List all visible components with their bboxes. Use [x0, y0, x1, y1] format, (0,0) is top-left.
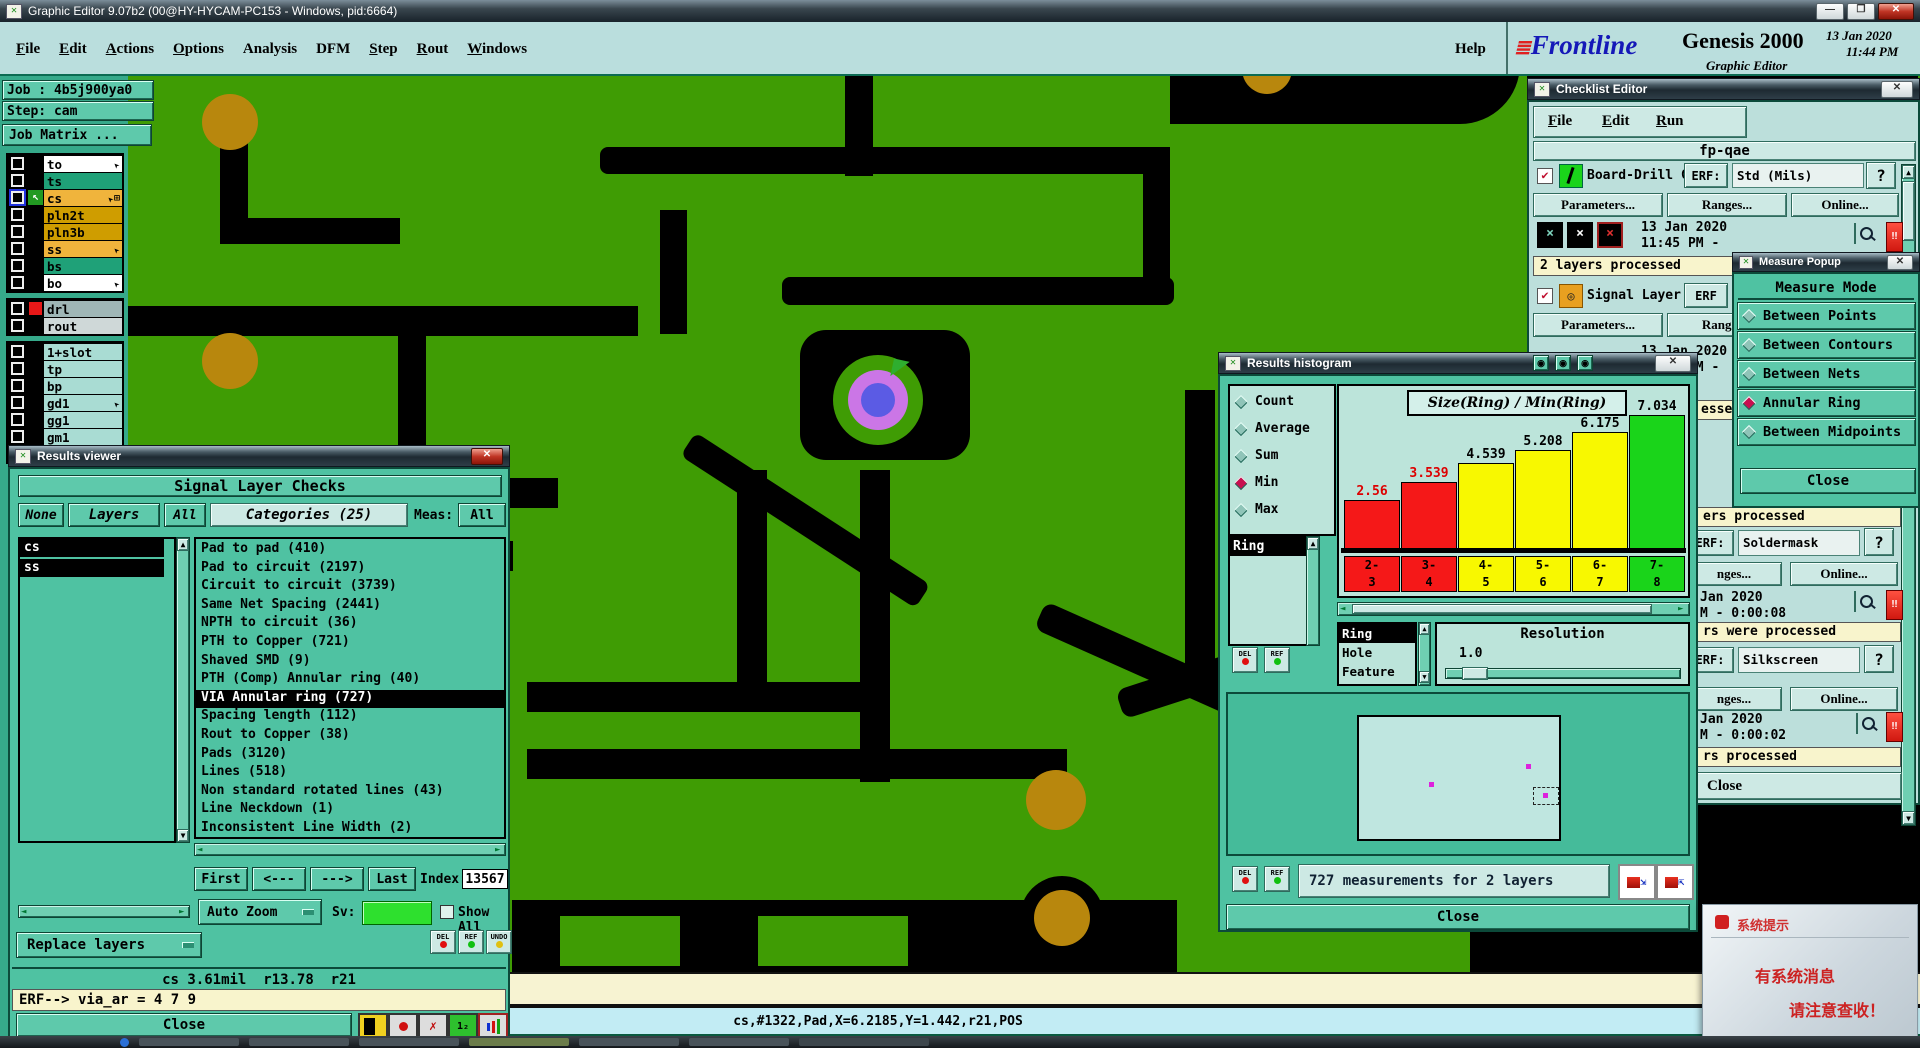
run-check-alt-icon[interactable]: ⨯: [1567, 222, 1593, 248]
prev-button[interactable]: <---: [252, 867, 306, 891]
taskbar-button[interactable]: [139, 1038, 239, 1046]
layer-visibility-checkbox[interactable]: [8, 394, 27, 411]
scroll-right-icon: ►: [1678, 604, 1683, 614]
layer-status-icon[interactable]: [27, 394, 44, 411]
pcb-trace: [1185, 390, 1215, 690]
system-message-popup[interactable]: 系统提示 有系统消息 请注意查收！: [1702, 904, 1918, 1040]
undo-result-button[interactable]: UNDO: [486, 930, 512, 954]
radio-diamond-icon: [1234, 421, 1248, 435]
run-check-stop-icon[interactable]: ⨯: [1597, 222, 1623, 248]
check-enabled-checkbox[interactable]: ✔: [1537, 168, 1553, 184]
maximize-button[interactable]: ❐: [1847, 3, 1875, 20]
dropdown-dash-icon: [302, 909, 314, 915]
alert-icon[interactable]: ‼: [1886, 222, 1903, 252]
menu-analysis[interactable]: Analysis: [243, 41, 297, 58]
board-outline: [1357, 715, 1561, 841]
erf-button[interactable]: ERF:: [1684, 163, 1728, 188]
layer-visibility-checkbox[interactable]: [8, 274, 27, 291]
undo-label: UNDO: [491, 933, 508, 941]
layer-row-to[interactable]: to➤: [8, 155, 122, 172]
layer-flag-icon: ➤: [109, 156, 125, 172]
ranges-button[interactable]: nges...: [1686, 687, 1782, 711]
category-item[interactable]: VIA Annular ring (727): [196, 690, 504, 709]
checklist-menu-edit[interactable]: Edit: [1602, 113, 1630, 130]
radio-diamond-icon: [1742, 425, 1756, 439]
window-title: Measure Popup: [1759, 256, 1841, 268]
parameters-button[interactable]: Parameters...: [1533, 313, 1663, 337]
results-close-button[interactable]: Close: [16, 1013, 352, 1037]
glass-artifact-icon: ◉: [1555, 355, 1571, 371]
category-item[interactable]: Lines (518): [196, 764, 504, 783]
pcb-trace: [527, 749, 1067, 779]
category-item[interactable]: Pad to pad (410): [196, 541, 504, 560]
glass-artifact-icon: ◉: [1533, 355, 1549, 371]
drill-glyph: [1566, 167, 1574, 184]
stat-option-max[interactable]: Max: [1236, 502, 1278, 517]
scroll-up-icon[interactable]: ▲: [1307, 537, 1319, 550]
layer-visibility-checkbox[interactable]: [8, 257, 27, 274]
layer-visibility-checkbox[interactable]: [8, 428, 27, 445]
layer-row-ss[interactable]: ss➤: [8, 240, 122, 257]
layer-status-icon[interactable]: [27, 411, 44, 428]
feature-item[interactable]: Hole: [1339, 643, 1415, 662]
axis-range-cell: 5-6: [1515, 556, 1571, 592]
erf-value-field[interactable]: Std (Mils): [1732, 163, 1864, 188]
replace-layers-dropdown[interactable]: Replace layers: [16, 932, 202, 958]
layer-list-scrollbar[interactable]: ▲ ▼: [176, 537, 190, 843]
axis-range-cell: 3-4: [1401, 556, 1457, 592]
zoom-result-icon[interactable]: [1854, 591, 1856, 612]
series-listbox: Ring: [1228, 536, 1308, 646]
menu-actions[interactable]: Actions: [106, 41, 154, 58]
category-item[interactable]: Pad to circuit (2197): [196, 560, 504, 579]
layer-row-bs[interactable]: bs: [8, 257, 122, 274]
layer-row-bo[interactable]: bo➤: [8, 274, 122, 291]
layer-name[interactable]: pln3b: [44, 223, 122, 240]
scroll-thumb[interactable]: [1902, 181, 1915, 241]
layer-row-cs[interactable]: ↖cs➤⊞: [8, 189, 122, 206]
layer-status-icon[interactable]: [27, 343, 44, 360]
zoom-result-icon[interactable]: [1854, 223, 1856, 244]
red-dot-icon: [440, 941, 447, 948]
measurement-dot[interactable]: [1429, 782, 1434, 787]
layer-status-icon[interactable]: [27, 155, 44, 172]
taskbar-button[interactable]: [359, 1038, 459, 1046]
stat-option-average[interactable]: Average: [1236, 421, 1310, 436]
filter-all-button[interactable]: All: [164, 503, 206, 527]
measure-mode-between-points[interactable]: Between Points: [1737, 302, 1916, 330]
parameters-button[interactable]: Parameters...: [1533, 193, 1663, 217]
layer-visibility-checkbox[interactable]: [8, 155, 27, 172]
axis-cells: 2-33-44-55-66-77-8: [1344, 556, 1686, 592]
run-time: M - 0:00:08: [1700, 606, 1786, 621]
ref-label: REF: [1271, 869, 1284, 877]
close-button[interactable]: ✕: [1878, 3, 1914, 20]
layer-color-chip: [29, 302, 42, 315]
option-label: Between Contours: [1763, 337, 1893, 353]
feature-item[interactable]: Ring: [1339, 624, 1415, 643]
taskbar-button[interactable]: [469, 1038, 569, 1046]
resolution-slider[interactable]: [1445, 668, 1681, 679]
next-button[interactable]: --->: [310, 867, 364, 891]
layer-name[interactable]: tp: [44, 360, 122, 377]
filter-layers-button[interactable]: Layers: [68, 503, 160, 527]
layer-row-gm1[interactable]: gm1: [8, 428, 122, 445]
meas-dropdown[interactable]: All: [458, 503, 506, 527]
layer-visibility-checkbox[interactable]: [8, 317, 27, 334]
job-matrix-button[interactable]: Job Matrix ...: [2, 124, 152, 146]
layer-status-icon[interactable]: [27, 257, 44, 274]
layer-status-icon[interactable]: [27, 377, 44, 394]
bar-value-label: 6.175: [1573, 416, 1627, 431]
erf-value-field[interactable]: Silkscreen: [1738, 647, 1860, 673]
clock-date: 13 Jan 2020: [1826, 28, 1892, 44]
red-dot-icon: [1242, 658, 1249, 665]
menu-rout[interactable]: Rout: [417, 41, 449, 58]
result-layer-listbox: cs ss: [18, 537, 176, 843]
scroll-down-icon[interactable]: ▼: [177, 829, 189, 842]
axis-baseline: [1341, 548, 1686, 553]
series-scrollbar[interactable]: ▲: [1306, 536, 1320, 646]
layer-status-icon[interactable]: [27, 240, 44, 257]
clock-time: 11:44 PM: [1846, 44, 1898, 60]
measurement-map-panel: [1226, 692, 1690, 856]
layer-name[interactable]: gg1: [44, 411, 122, 428]
taskbar-button[interactable]: [579, 1038, 679, 1046]
menu-file[interactable]: File: [16, 41, 40, 58]
slider-thumb[interactable]: [1462, 667, 1488, 680]
stat-option-count[interactable]: Count: [1236, 394, 1294, 409]
histogram-close-button[interactable]: Close: [1226, 904, 1690, 930]
import-histogram-icon[interactable]: ⇱: [1656, 864, 1694, 900]
bars-area: 2.563.5394.5395.2086.1757.034: [1344, 386, 1686, 549]
radio-diamond-icon: [1234, 448, 1248, 462]
feature-scrollbar[interactable]: ▲ ▼: [1418, 622, 1431, 686]
green-dot-icon: [1274, 658, 1281, 665]
layer-name[interactable]: ts: [44, 172, 122, 189]
checklist-menubar: File Edit Run: [1533, 106, 1747, 138]
app-icon: ✕: [6, 4, 22, 19]
last-button[interactable]: Last: [368, 867, 416, 891]
pcb-trace: [845, 64, 873, 176]
alert-icon[interactable]: ‼: [1886, 590, 1903, 620]
window-title: Results viewer: [37, 449, 121, 463]
layer-status-icon[interactable]: [27, 428, 44, 445]
histogram-bar: 7.034: [1629, 415, 1685, 549]
pcb-trace: [1143, 147, 1170, 287]
scroll-right-icon: ►: [179, 907, 184, 917]
checklist-menu-file[interactable]: File: [1548, 113, 1572, 130]
delete-result-button[interactable]: DEL: [430, 930, 456, 954]
measure-mode-between-contours[interactable]: Between Contours: [1737, 331, 1916, 359]
close-icon[interactable]: ✕: [1887, 255, 1913, 270]
close-icon[interactable]: ✕: [1655, 355, 1691, 372]
measure-close-button[interactable]: Close: [1740, 468, 1916, 494]
delete-measure-button[interactable]: DEL: [1232, 866, 1258, 892]
layer-visibility-checkbox[interactable]: [8, 343, 27, 360]
checklist-name: fp-qae: [1533, 141, 1916, 161]
feature-listbox: Ring Hole Feature: [1337, 622, 1417, 686]
pcb-trace: [860, 470, 890, 782]
layer-name[interactable]: gm1: [44, 428, 122, 445]
start-orb-icon[interactable]: [120, 1038, 129, 1047]
scroll-down-icon[interactable]: ▼: [1902, 811, 1915, 825]
measurement-summary: 727 measurements for 2 layers: [1298, 864, 1610, 898]
status-fragment: rs processed: [1703, 749, 1797, 764]
del-label: DEL: [1239, 869, 1252, 877]
scroll-up-icon[interactable]: ▲: [177, 538, 189, 551]
step-label: Step: cam: [2, 101, 154, 121]
layer-status-icon[interactable]: [27, 300, 44, 317]
menu-dfm[interactable]: DFM: [316, 41, 350, 58]
drill-check-icon: [1559, 164, 1583, 188]
layer-visibility-checkbox[interactable]: [8, 206, 27, 223]
del-label: DEL: [1239, 650, 1252, 658]
histogram-bar: 6.175: [1572, 432, 1628, 549]
graphic-editor-screen: ✕ Graphic Editor 9.07b2 (00@HY-HYCAM-PC1…: [0, 0, 1920, 1048]
close-icon[interactable]: ✕: [1881, 81, 1913, 98]
signal-layer-group: to➤ts↖cs➤⊞pln2tpln3bss➤bsbo➤: [6, 153, 124, 293]
delete-measure-button[interactable]: DEL: [1232, 647, 1258, 673]
menu-step[interactable]: Step: [369, 41, 397, 58]
red-dot-icon: [1242, 877, 1249, 884]
layer-flag-icon: ➤: [109, 241, 125, 257]
scroll-thumb[interactable]: [1352, 604, 1652, 614]
check-enabled-checkbox[interactable]: ✔: [1537, 288, 1553, 304]
export-histogram-icon[interactable]: ⇲: [1618, 864, 1656, 900]
severity-field[interactable]: [362, 901, 432, 925]
category-item[interactable]: Circuit to circuit (3739): [196, 578, 504, 597]
help-button[interactable]: ?: [1864, 528, 1894, 556]
layer-name[interactable]: drl: [44, 300, 122, 317]
stat-option-sum[interactable]: Sum: [1236, 448, 1278, 463]
bar-value-label: 5.208: [1516, 434, 1570, 449]
feature-item[interactable]: Feature: [1339, 662, 1415, 681]
layer-name[interactable]: pln2t: [44, 206, 122, 223]
series-item[interactable]: Ring: [1230, 538, 1306, 556]
stat-label: Count: [1255, 394, 1294, 409]
measure-mode-header: Measure Mode: [1738, 278, 1914, 300]
layer-visibility-checkbox[interactable]: [8, 377, 27, 394]
first-button[interactable]: First: [194, 867, 248, 891]
erf-value-field[interactable]: Soldermask: [1738, 530, 1860, 556]
resolution-value: 1.0: [1459, 646, 1482, 661]
layer-visibility-checkbox[interactable]: [8, 360, 27, 377]
del-label: DEL: [437, 933, 450, 941]
chart-scrollbar[interactable]: ◄ ►: [1337, 602, 1690, 616]
layer-visibility-checkbox[interactable]: [8, 411, 27, 428]
close-icon[interactable]: ✕: [471, 448, 503, 465]
gold-drill-pad: [202, 333, 258, 389]
measure-mode-annular-ring[interactable]: Annular Ring: [1737, 389, 1916, 417]
taskbar[interactable]: [0, 1036, 1920, 1048]
glass-artifact-icon: ◉: [1577, 355, 1593, 371]
help-button[interactable]: ?: [1864, 645, 1894, 673]
stat-label: Max: [1255, 502, 1278, 517]
online-button[interactable]: Online...: [1790, 562, 1898, 586]
layer-row-ts[interactable]: ts: [8, 172, 122, 189]
layer-visibility-checkbox[interactable]: [8, 300, 27, 317]
reference-result-button[interactable]: REF: [458, 930, 484, 954]
menu-options[interactable]: Options: [173, 41, 224, 58]
layer-status-icon[interactable]: [27, 206, 44, 223]
layer-row-gg1[interactable]: gg1: [8, 411, 122, 428]
online-button[interactable]: Online...: [1790, 687, 1898, 711]
menu-windows[interactable]: Windows: [467, 41, 527, 58]
layer-name[interactable]: ss➤: [44, 240, 122, 257]
option-label: Between Points: [1763, 308, 1877, 324]
layer-name[interactable]: rout: [44, 317, 122, 334]
result-layer-item[interactable]: cs: [20, 539, 164, 557]
radio-diamond-icon: [1234, 502, 1248, 516]
results-viewer-window: ✕ Results viewer ✕ Signal Layer Checks N…: [8, 445, 510, 1040]
run-date: Jan 2020: [1700, 712, 1763, 727]
measure-mode-between-midpoints[interactable]: Between Midpoints: [1737, 418, 1916, 446]
zoom-result-icon[interactable]: [1856, 713, 1858, 734]
filter-none-button[interactable]: None: [18, 503, 64, 527]
run-date: 13 Jan 2020: [1641, 220, 1727, 235]
histogram-bar: 2.56: [1344, 500, 1400, 549]
popup-message-line1: 有系统消息: [1755, 963, 1835, 987]
bar-value-label: 3.539: [1402, 466, 1456, 481]
category-item[interactable]: PTH (Comp) Annular ring (40): [196, 671, 504, 690]
layer-row-tp[interactable]: tp: [8, 360, 122, 377]
layer-status-icon[interactable]: [27, 274, 44, 291]
result-layer-item[interactable]: ss: [20, 559, 164, 577]
show-all-checkbox[interactable]: [440, 905, 454, 919]
layer-visibility-checkbox[interactable]: [8, 189, 27, 206]
layer-status-icon[interactable]: [27, 172, 44, 189]
category-item[interactable]: NPTH to circuit (36): [196, 615, 504, 634]
menu-help[interactable]: Help: [1455, 22, 1486, 76]
minimize-button[interactable]: —: [1816, 3, 1844, 20]
layer-status-icon[interactable]: ↖: [27, 189, 44, 206]
radio-diamond-icon: [1742, 396, 1756, 410]
layer-name[interactable]: to➤: [44, 155, 122, 172]
pcb-pad: [560, 916, 680, 966]
ref-label: REF: [1271, 650, 1284, 658]
reference-measure-button[interactable]: REF: [1264, 647, 1290, 673]
layer-list-h-scrollbar[interactable]: ◄ ►: [18, 905, 190, 918]
window-title: Results histogram: [1247, 356, 1352, 370]
reference-measure-button[interactable]: REF: [1264, 866, 1290, 892]
bar-value-label: 4.539: [1459, 447, 1513, 462]
taskbar-button[interactable]: [689, 1038, 789, 1046]
category-item[interactable]: Shaved SMD (9): [196, 653, 504, 672]
product-name: Genesis 2000: [1682, 28, 1804, 54]
pcb-trace: [660, 210, 687, 334]
layer-status-icon[interactable]: [27, 360, 44, 377]
scroll-up-icon[interactable]: ▲: [1419, 623, 1430, 635]
index-label: Index:: [420, 872, 467, 887]
checklist-menu-run[interactable]: Run: [1656, 113, 1684, 130]
layer-name[interactable]: gd1➤: [44, 394, 122, 411]
scroll-right-icon: ►: [495, 845, 500, 855]
layer-row-drl[interactable]: drl: [8, 300, 122, 317]
gold-drill-pad: [1026, 770, 1086, 830]
category-item[interactable]: Pads (3120): [196, 746, 504, 765]
categories-listbox: Pad to pad (410)Pad to circuit (2197)Cir…: [194, 537, 506, 839]
layer-name[interactable]: bs: [44, 257, 122, 274]
layer-row-rout[interactable]: rout: [8, 317, 122, 334]
axis-range-cell: 7-8: [1629, 556, 1685, 592]
pcb-trace: [128, 306, 638, 336]
app-titlebar[interactable]: ✕ Graphic Editor 9.07b2 (00@HY-HYCAM-PC1…: [0, 0, 1920, 22]
category-item[interactable]: Line Neckdown (1): [196, 801, 504, 820]
taskbar-button[interactable]: [249, 1038, 349, 1046]
histogram-bar: 4.539: [1458, 463, 1514, 549]
menu-edit[interactable]: Edit: [59, 41, 87, 58]
dropdown-dash-icon: [182, 942, 194, 948]
layer-row-pln3b[interactable]: pln3b: [8, 223, 122, 240]
erf-button[interactable]: ERF: [1684, 283, 1728, 308]
layer-row-gd1[interactable]: gd1➤: [8, 394, 122, 411]
layer-name[interactable]: cs➤⊞: [44, 189, 122, 206]
alert-icon[interactable]: ‼: [1886, 712, 1903, 742]
run-check-icon[interactable]: ⨯: [1537, 222, 1563, 248]
layer-visibility-checkbox[interactable]: [8, 223, 27, 240]
layer-row-pln2t[interactable]: pln2t: [8, 206, 122, 223]
layer-status-icon[interactable]: [27, 317, 44, 334]
histogram-chart: Size(Ring) / Min(Ring) 2.563.5394.5395.2…: [1337, 384, 1690, 598]
layer-visibility-checkbox[interactable]: [8, 240, 27, 257]
category-item[interactable]: Spacing length (112): [196, 708, 504, 727]
categories-header: Categories (25): [210, 503, 408, 527]
measure-mode-between-nets[interactable]: Between Nets: [1737, 360, 1916, 388]
scroll-down-icon[interactable]: ▼: [1419, 671, 1430, 683]
window-icon: ✕: [1739, 256, 1753, 269]
stat-option-min[interactable]: Min: [1236, 475, 1278, 490]
scroll-up-icon[interactable]: ▲: [1902, 165, 1915, 179]
scroll-left-icon: ◄: [197, 845, 202, 855]
meas-label: Meas:: [414, 508, 453, 523]
signal-check-icon: ◎: [1559, 284, 1583, 308]
layer-name[interactable]: bo➤: [44, 274, 122, 291]
active-layer-arrow-icon: ↖: [28, 190, 43, 205]
layer-name[interactable]: 1+slot: [44, 343, 122, 360]
ranges-button[interactable]: nges...: [1686, 562, 1782, 586]
menubar-divider: [1506, 22, 1508, 74]
pcb-trace: [737, 470, 767, 710]
taskbar-button[interactable]: [799, 1038, 929, 1046]
layer-row-bp[interactable]: bp: [8, 377, 122, 394]
category-item[interactable]: Inconsistent Line Width (2): [196, 820, 504, 839]
ranges-button[interactable]: Ranges...: [1667, 193, 1787, 217]
histogram-bar: 3.539: [1401, 482, 1457, 549]
option-label: Between Nets: [1763, 366, 1861, 382]
checklist-close-button[interactable]: Close: [1686, 772, 1902, 800]
measure-popup-window: ✕ Measure Popup ✕ Measure Mode Between P…: [1732, 252, 1920, 508]
help-button[interactable]: ?: [1866, 162, 1896, 189]
layer-visibility-checkbox[interactable]: [8, 172, 27, 189]
layer-status-icon[interactable]: [27, 223, 44, 240]
index-field[interactable]: 13567: [462, 869, 508, 889]
menu-bar: File Edit Actions Options Analysis DFM S…: [0, 22, 1920, 76]
category-item[interactable]: Rout to Copper (38): [196, 727, 504, 746]
layer-row-1+slot[interactable]: 1+slot: [8, 343, 122, 360]
categories-h-scrollbar[interactable]: ◄ ►: [194, 843, 506, 856]
window-icon: ✕: [1225, 356, 1241, 371]
layer-name[interactable]: bp: [44, 377, 122, 394]
category-item[interactable]: Non standard rotated lines (43): [196, 783, 504, 802]
product-subtitle: Graphic Editor: [1706, 58, 1787, 74]
category-item[interactable]: PTH to Copper (721): [196, 634, 504, 653]
category-item[interactable]: Same Net Spacing (2441): [196, 597, 504, 616]
online-button[interactable]: Online...: [1791, 193, 1899, 217]
popup-message-line2: 请注意查收！: [1789, 997, 1885, 1021]
measurement-dot[interactable]: [1526, 764, 1531, 769]
run-date: Jan 2020: [1700, 590, 1763, 605]
